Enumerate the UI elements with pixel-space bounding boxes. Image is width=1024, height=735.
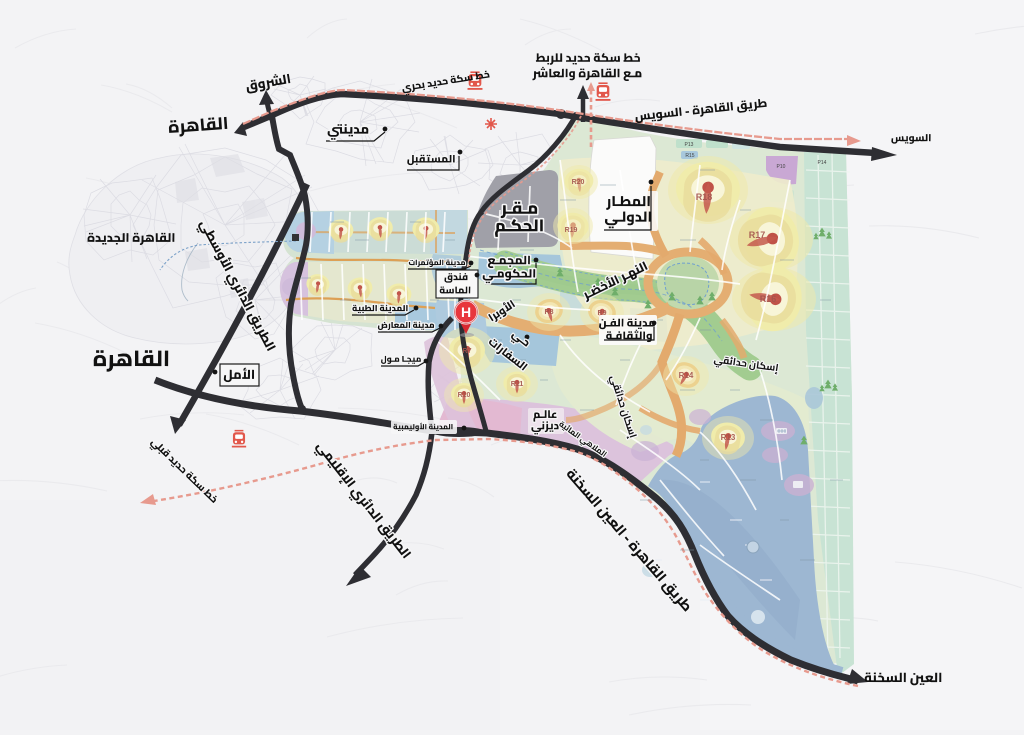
svg-text:R13: R13 bbox=[721, 433, 736, 442]
svg-text:R8: R8 bbox=[545, 309, 554, 316]
svg-text:R15: R15 bbox=[685, 153, 694, 159]
svg-text:R17: R17 bbox=[749, 230, 766, 240]
svg-text:R19: R19 bbox=[565, 227, 578, 234]
svg-text:R20: R20 bbox=[572, 179, 585, 186]
svg-text:R11: R11 bbox=[511, 381, 524, 388]
svg-text:R18: R18 bbox=[696, 192, 713, 202]
svg-text:R10: R10 bbox=[458, 392, 471, 399]
svg-text:R7: R7 bbox=[463, 348, 472, 355]
svg-text:R14: R14 bbox=[679, 371, 694, 380]
svg-text:P10: P10 bbox=[777, 164, 786, 170]
svg-text:H: H bbox=[461, 304, 471, 320]
svg-text:R9: R9 bbox=[598, 310, 607, 317]
svg-text:R16: R16 bbox=[760, 294, 777, 304]
svg-text:P14: P14 bbox=[818, 160, 827, 166]
svg-text:P13: P13 bbox=[685, 142, 694, 148]
